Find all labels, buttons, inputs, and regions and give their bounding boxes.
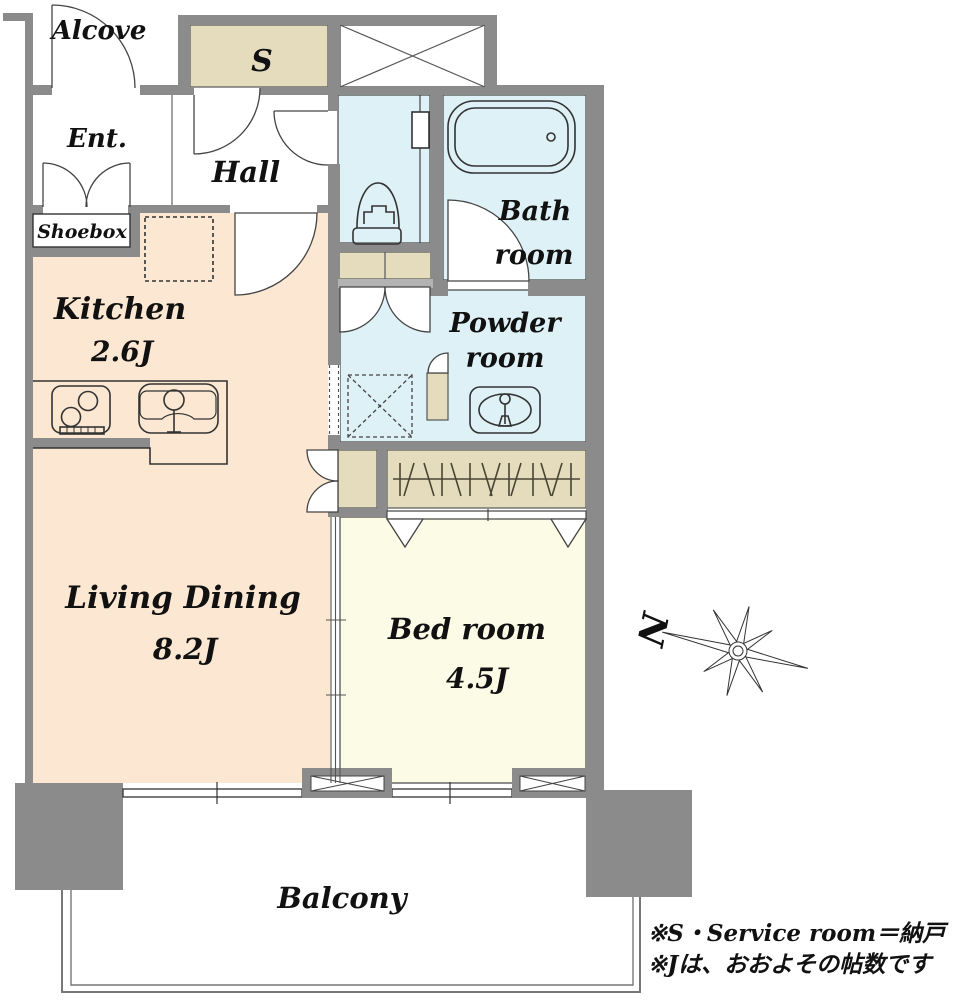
- window-bedroom: [392, 789, 512, 797]
- service-room-door: [194, 88, 260, 154]
- compass-rose: [662, 606, 808, 695]
- kitchen-size: 2.6J: [90, 335, 155, 368]
- service-room-label: S: [251, 44, 273, 79]
- footnotes: ※S・Service room＝納戸 ※Jは、おおよその帖数です: [648, 920, 949, 978]
- entrance-label: Ent.: [66, 124, 127, 154]
- bath-label-2: room: [495, 240, 574, 271]
- wall-dashed-opening: [328, 365, 340, 435]
- entrance-double-door: [43, 163, 130, 207]
- shoebox-label: Shoebox: [37, 221, 127, 243]
- bedroom-label: Bed room: [387, 612, 546, 646]
- floor-plan-canvas: N Alcove S Ent. Hall Shoebox Kitchen 2.6…: [0, 0, 954, 1000]
- floor-plan-page: N Alcove S Ent. Hall Shoebox Kitchen 2.6…: [0, 0, 954, 1000]
- powder-label-2: room: [466, 343, 545, 374]
- shutter-box-right: [512, 768, 592, 798]
- wc-door: [274, 111, 328, 165]
- pillar-left: [15, 783, 123, 890]
- window-living: [123, 789, 302, 797]
- powder-door-post: [427, 373, 448, 420]
- room-bedroom-floor: [340, 517, 586, 783]
- closet-small-ld: [338, 450, 377, 508]
- balcony-label: Balcony: [276, 881, 408, 915]
- bedroom-size: 4.5J: [446, 662, 510, 695]
- kitchen-label: Kitchen: [53, 292, 186, 327]
- living-dining-size: 8.2J: [152, 632, 219, 666]
- north-label: N: [628, 608, 677, 652]
- pipe-shaft: [340, 25, 485, 87]
- powder-label-1: Powder: [448, 308, 562, 339]
- shutter-box-left: [302, 768, 392, 798]
- note-line-2: ※Jは、おおよその帖数です: [648, 951, 934, 978]
- pillar-right: [586, 790, 692, 897]
- bath-label-1: Bath: [498, 196, 571, 227]
- note-line-1: ※S・Service room＝納戸: [648, 920, 949, 947]
- hall-label: Hall: [211, 155, 280, 189]
- alcove-label: Alcove: [49, 16, 147, 46]
- pillars: [15, 783, 692, 897]
- living-dining-label: Living Dining: [64, 580, 301, 616]
